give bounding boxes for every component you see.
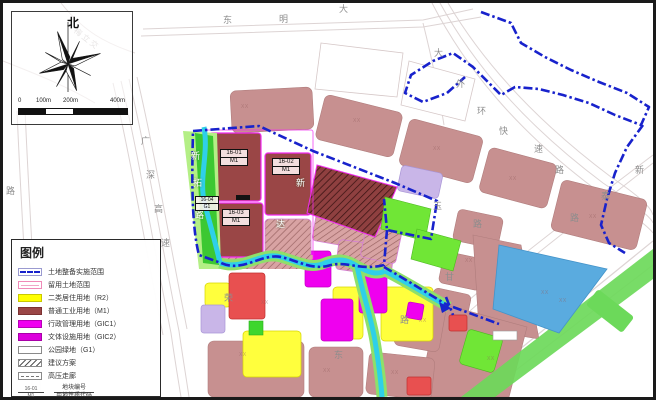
scale-tick: 100m xyxy=(36,98,51,104)
road-label-dawaihuan: 速 xyxy=(534,145,543,154)
culture-swatch xyxy=(18,333,42,341)
faint-parcel-code: XX xyxy=(323,369,331,374)
legend-item-r2: 二类居住用地（R2） xyxy=(18,291,154,304)
small-green-square xyxy=(249,321,263,335)
parcel-label-16-02: 16-02 M1 xyxy=(272,158,300,175)
reserved-land-swatch xyxy=(18,281,42,289)
faint-parcel-code: XX xyxy=(433,147,441,152)
legend-item-label: 文体设施用地（GIC2） xyxy=(48,332,120,342)
compass-panel: 北 0 100m 200m 400m xyxy=(11,11,133,125)
code-key-sample-code: 16-01 xyxy=(18,386,44,393)
parcel-code: 16-03 xyxy=(223,210,249,218)
planning-map-sheet: 东 明 大 大 外 环 快 速 路 新 泰 路 广 深 高 速 新 拓 路 玉 … xyxy=(0,0,656,400)
parcel-use: M1 xyxy=(232,218,240,224)
residential-swatch xyxy=(18,294,42,302)
legend-item-g1: 公园绿地（G1） xyxy=(18,343,154,356)
scale-segment xyxy=(46,109,73,114)
legend-item-label: 高压走廊 xyxy=(48,371,76,381)
road-label-xintai: 泰 xyxy=(601,192,610,201)
faint-parcel-code: XX xyxy=(391,371,399,376)
parcel-label-16-04: 16-04 G1 xyxy=(195,196,219,211)
road-label-guangshen: 高 xyxy=(154,205,163,214)
code-key-denominator: 用地性质代码 xyxy=(54,393,94,400)
legend-item-hv: 高压走廊 xyxy=(18,369,154,382)
scale-segment xyxy=(19,109,46,114)
road-label-xintai: 路 xyxy=(570,214,579,223)
code-key-explanation: 地块编号 用地性质代码 xyxy=(54,385,94,400)
legend-item-gic2: 文体设施用地（GIC2） xyxy=(18,330,154,343)
legend-item-label: 土地整备实施范围 xyxy=(48,267,104,277)
road-label-guangshen: 深 xyxy=(146,171,155,180)
faint-parcel-code: XX xyxy=(261,301,269,306)
parcel-code: 16-01 xyxy=(221,150,247,158)
road-label-dongming: 东 xyxy=(223,16,232,25)
parcel-use: G1 xyxy=(204,204,211,210)
road-label-xintai: 新 xyxy=(635,166,644,175)
faint-parcel-code: XX xyxy=(241,105,249,110)
faint-parcel-code: XX xyxy=(541,291,549,296)
black-bar-marker xyxy=(236,195,250,200)
legend-item-reserved: 留用土地范围 xyxy=(18,278,154,291)
scale-segment xyxy=(73,109,127,114)
parcel-code: 16-02 xyxy=(273,159,299,167)
legend-item-boundary: 土地整备实施范围 xyxy=(18,265,154,278)
road-label-xinda: 新 xyxy=(296,179,305,188)
faint-parcel-code: XX xyxy=(559,299,567,304)
road-label-dong: 东 xyxy=(334,351,343,360)
legend-item-label: 留用土地范围 xyxy=(48,280,90,290)
faint-parcel-code: XX xyxy=(465,259,473,264)
proposal-swatch xyxy=(18,359,42,367)
boundary-line-swatch xyxy=(18,268,42,276)
tiny-white-label-box xyxy=(493,331,517,340)
parcel-label-16-03: 16-03 M1 xyxy=(222,209,250,226)
road-label-dawaihuan: 大 xyxy=(434,49,443,58)
hv-corridor-swatch xyxy=(18,372,42,380)
road-label-dawaihuan: 外 xyxy=(456,80,465,89)
legend-item-label: 行政管理用地（GIC1） xyxy=(48,319,120,329)
faint-parcel-code: XX xyxy=(353,119,361,124)
faint-parcel-code: XX xyxy=(487,357,495,362)
legend-code-key: 16-01 M1 地块编号 用地性质代码 xyxy=(18,385,154,400)
scale-tick: 0 xyxy=(18,98,21,104)
road-label-dawaihuan: 快 xyxy=(499,127,508,136)
legend-item-label: 公园绿地（G1） xyxy=(48,345,99,355)
scale-bar: 0 100m 200m 400m xyxy=(16,98,130,122)
road-label-xintuo: 拓 xyxy=(193,179,202,188)
road-label-yu: 路 xyxy=(473,220,482,229)
legend-item-proposal: 建议方案 xyxy=(18,356,154,369)
parcel-label-16-01: 16-01 M1 xyxy=(220,149,248,166)
code-key-sample-use: M1 xyxy=(18,393,44,399)
road-label-xintuo: 路 xyxy=(195,211,204,220)
road-label-guangshen: 广 xyxy=(141,137,150,146)
compass-rose xyxy=(12,12,134,98)
scale-tick: 400m xyxy=(110,98,125,104)
scale-tick: 200m xyxy=(63,98,78,104)
legend-item-gic1: 行政管理用地（GIC1） xyxy=(18,317,154,330)
parcel-use: M1 xyxy=(282,167,290,173)
industrial-swatch xyxy=(18,307,42,315)
legend-title: 图例 xyxy=(20,244,154,261)
parcel-code: 16-04 xyxy=(196,197,218,204)
road-label-gan: 甘 xyxy=(445,273,454,282)
admin-swatch xyxy=(18,320,42,328)
road-label-xintuo: 新 xyxy=(191,152,200,161)
faint-parcel-code: XX xyxy=(419,319,427,324)
code-key-sample: 16-01 M1 xyxy=(18,386,44,399)
legend-item-m1: 普通工业用地（M1） xyxy=(18,304,154,317)
legend-item-label: 建议方案 xyxy=(48,358,76,368)
road-label-dongming: 明 xyxy=(279,15,288,24)
road-label-mid: 路 xyxy=(400,316,409,325)
legend-panel: 图例 土地整备实施范围 留用土地范围 二类居住用地（R2） 普通工业用地（M1）… xyxy=(11,239,161,397)
park-swatch xyxy=(18,346,42,354)
road-label-rong: 荣 xyxy=(224,294,233,303)
legend-item-label: 普通工业用地（M1） xyxy=(48,306,114,316)
scale-bar-segments xyxy=(18,108,128,115)
road-label-xinda: 达 xyxy=(276,220,285,229)
parcel-use: M1 xyxy=(230,158,238,164)
road-label-dongming: 大 xyxy=(339,5,348,14)
legend-item-label: 二类居住用地（R2） xyxy=(48,293,113,303)
road-label-guangshen: 速 xyxy=(161,239,170,248)
faint-parcel-code: XX xyxy=(589,215,597,220)
code-key-numerator: 地块编号 xyxy=(54,385,94,393)
road-label-dawaihuan: 环 xyxy=(477,107,486,116)
road-label-left: 路 xyxy=(6,187,15,196)
faint-parcel-code: XX xyxy=(239,353,247,358)
road-label-dawaihuan: 路 xyxy=(555,166,564,175)
faint-parcel-code: XX xyxy=(509,177,517,182)
road-label-yu: 玉 xyxy=(433,202,442,211)
